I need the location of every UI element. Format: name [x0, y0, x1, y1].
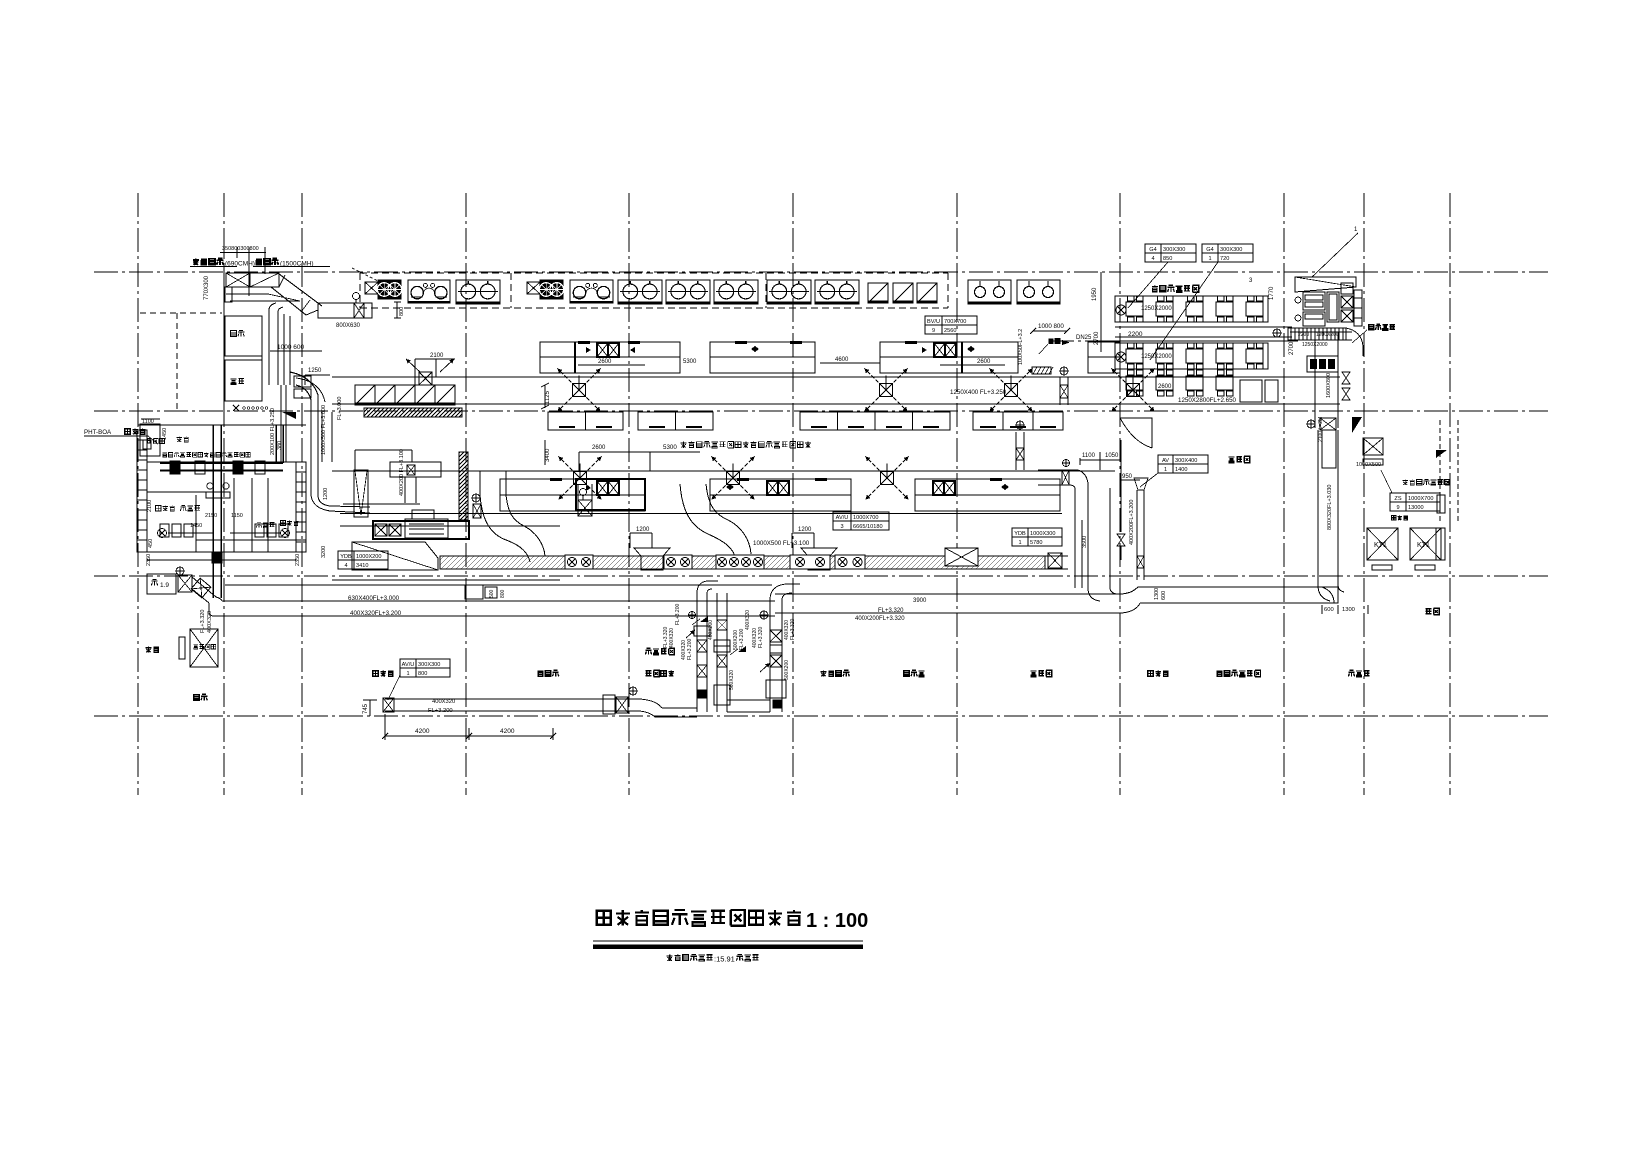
- svg-text:FL+3.320: FL+3.320: [790, 619, 796, 640]
- svg-text:1000X500 FL+3.100: 1000X500 FL+3.100: [753, 540, 810, 547]
- svg-text:1200: 1200: [636, 527, 650, 533]
- svg-text:400X320: 400X320: [432, 699, 455, 705]
- svg-text:1150: 1150: [231, 513, 243, 519]
- svg-text:2200: 2200: [1128, 331, 1143, 338]
- svg-text:450: 450: [148, 539, 154, 548]
- svg-text:700X700: 700X700: [944, 319, 966, 325]
- svg-text:1250: 1250: [308, 368, 322, 374]
- svg-text:1100: 1100: [142, 419, 154, 425]
- svg-text:4200: 4200: [415, 728, 430, 735]
- svg-text:4: 4: [1151, 256, 1154, 262]
- svg-text:400X320: 400X320: [207, 611, 213, 633]
- svg-text:800: 800: [418, 671, 427, 677]
- svg-text:DN25: DN25: [1076, 335, 1092, 341]
- svg-text:1000X200: 1000X200: [356, 554, 382, 560]
- svg-text:1250X2800FL+2.650: 1250X2800FL+2.650: [1178, 397, 1237, 404]
- svg-text:745: 745: [363, 703, 369, 714]
- svg-text:560X320: 560X320: [729, 670, 735, 690]
- svg-text:FL+3.320: FL+3.320: [663, 627, 669, 648]
- svg-text:KT1: KT1: [1374, 542, 1387, 549]
- svg-text:1770: 1770: [1269, 286, 1275, 300]
- svg-text:YDB: YDB: [340, 554, 352, 560]
- svg-text:500: 500: [489, 589, 495, 598]
- svg-text:2600: 2600: [598, 359, 612, 365]
- svg-text:ZS: ZS: [1394, 496, 1401, 502]
- svg-text:4200: 4200: [500, 728, 515, 735]
- svg-text:1: 1: [406, 671, 409, 677]
- svg-text:950: 950: [1122, 474, 1133, 480]
- svg-text:KT1: KT1: [1417, 542, 1430, 549]
- svg-text:400X320: 400X320: [745, 610, 751, 630]
- svg-text:1200: 1200: [323, 488, 329, 500]
- svg-text:1200: 1200: [798, 527, 812, 533]
- svg-text:1100: 1100: [1082, 453, 1096, 459]
- svg-text::15.91: :15.91: [714, 955, 735, 964]
- svg-text:500X200: 500X200: [784, 660, 790, 680]
- svg-text:AV/U: AV/U: [836, 515, 849, 521]
- svg-text:9: 9: [1396, 505, 1399, 511]
- svg-text:300X300: 300X300: [1163, 247, 1185, 253]
- svg-text:3500: 3500: [1082, 536, 1088, 548]
- svg-text:1000 800: 1000 800: [1038, 323, 1064, 330]
- svg-text:1000X300: 1000X300: [1030, 531, 1056, 537]
- svg-text:FL+3.200: FL+3.200: [687, 639, 693, 660]
- svg-text:2600: 2600: [592, 445, 606, 451]
- svg-text:380: 380: [277, 441, 283, 450]
- svg-text:AV/U: AV/U: [402, 662, 415, 668]
- svg-text:800: 800: [500, 589, 506, 598]
- svg-text:2100: 2100: [430, 353, 444, 359]
- svg-text:FL+3.200: FL+3.200: [428, 708, 453, 714]
- svg-text:1000 600: 1000 600: [277, 344, 304, 351]
- svg-text:YDB: YDB: [1014, 531, 1026, 537]
- svg-text:350800300800: 350800300800: [222, 246, 259, 252]
- svg-text:AV: AV: [1162, 458, 1169, 464]
- svg-text:1250X400 FL+3.250: 1250X400 FL+3.250: [950, 389, 1007, 396]
- svg-text:100X50FL+3.2: 100X50FL+3.2: [1018, 329, 1024, 365]
- svg-text:PHT-BOA: PHT-BOA: [84, 429, 112, 436]
- svg-text:800X320FL+3.030: 800X320FL+3.030: [1327, 485, 1333, 530]
- svg-text:1950: 1950: [1092, 287, 1098, 301]
- svg-text:3900: 3900: [913, 598, 927, 604]
- svg-text:1050: 1050: [1105, 453, 1119, 459]
- svg-text:FL+3.320: FL+3.320: [878, 608, 904, 614]
- svg-text:3410: 3410: [356, 563, 368, 569]
- svg-text:1: 1: [1164, 467, 1167, 473]
- svg-text:1.9: 1.9: [160, 582, 169, 589]
- svg-text:1000X700: 1000X700: [1408, 496, 1434, 502]
- svg-text:400X200FL+3.200: 400X200FL+3.200: [1129, 500, 1135, 545]
- svg-text:400X200 FL+3.100: 400X200 FL+3.100: [399, 449, 405, 496]
- svg-text:1: 1: [1018, 540, 1021, 546]
- svg-text:FL+3.200: FL+3.200: [739, 629, 745, 650]
- svg-text:770X300: 770X300: [204, 275, 210, 300]
- svg-text:1250X2000: 1250X2000: [1141, 354, 1172, 360]
- svg-text:9: 9: [932, 328, 935, 334]
- svg-text:2350: 2350: [295, 554, 301, 566]
- svg-text:4: 4: [344, 563, 347, 569]
- svg-text:2600: 2600: [1158, 384, 1172, 390]
- svg-text:4600: 4600: [835, 357, 849, 363]
- svg-text:G4: G4: [1149, 247, 1156, 253]
- svg-text:5300: 5300: [683, 359, 697, 365]
- svg-text:1400: 1400: [1175, 467, 1187, 473]
- svg-text:400X320: 400X320: [681, 640, 687, 660]
- svg-text:2600: 2600: [977, 359, 991, 365]
- svg-text:6665/10180: 6665/10180: [853, 524, 883, 530]
- svg-text:400X320: 400X320: [669, 628, 675, 648]
- svg-text:2100: 2100: [147, 500, 153, 512]
- svg-text:BV/U: BV/U: [927, 319, 940, 325]
- svg-text:1000X700: 1000X700: [853, 515, 879, 521]
- svg-text:850: 850: [1163, 256, 1172, 262]
- svg-text:13000: 13000: [1408, 505, 1424, 511]
- svg-text:400X200FL+3.320: 400X200FL+3.320: [855, 616, 905, 622]
- svg-text:400X320: 400X320: [752, 628, 758, 648]
- svg-text:1250X2000: 1250X2000: [1141, 306, 1172, 312]
- svg-text:FL+3.320: FL+3.320: [758, 627, 764, 648]
- svg-text:FL+3.200: FL+3.200: [675, 604, 681, 625]
- svg-text:2200: 2200: [1298, 332, 1309, 338]
- svg-text:600: 600: [1324, 607, 1334, 613]
- svg-text:720: 720: [1220, 256, 1229, 262]
- svg-text:1600X800: 1600X800: [1326, 373, 1332, 398]
- svg-text:2700: 2700: [1094, 331, 1100, 345]
- svg-text:5300: 5300: [663, 444, 677, 451]
- svg-text:2150: 2150: [205, 513, 217, 519]
- svg-text:300X300: 300X300: [1220, 247, 1242, 253]
- svg-text:1: 1: [1208, 256, 1211, 262]
- svg-text:400X320: 400X320: [784, 620, 790, 640]
- svg-text:1000X500: 1000X500: [1356, 462, 1381, 468]
- svg-text:5780: 5780: [1030, 540, 1042, 546]
- svg-text:2560: 2560: [944, 328, 956, 334]
- svg-text:G4: G4: [1206, 247, 1213, 253]
- svg-text:400X200: 400X200: [708, 620, 714, 640]
- svg-text:3400: 3400: [545, 448, 551, 462]
- svg-text:300X400: 300X400: [1175, 458, 1197, 464]
- svg-text:200X100 FL+3.250: 200X100 FL+3.250: [270, 408, 276, 455]
- svg-text:1200X200: 1200X200: [1316, 332, 1339, 338]
- svg-text:3: 3: [840, 524, 843, 530]
- svg-text:300X300: 300X300: [418, 662, 440, 668]
- svg-text:1 : 100: 1 : 100: [806, 910, 868, 932]
- svg-text:600: 600: [1161, 591, 1167, 600]
- svg-text:FL+3.000: FL+3.000: [337, 397, 343, 420]
- svg-text:1300: 1300: [1342, 607, 1355, 613]
- svg-text:3200: 3200: [321, 546, 327, 558]
- svg-text:800X630: 800X630: [336, 323, 361, 329]
- svg-text:1125: 1125: [545, 390, 551, 404]
- svg-text:1300: 1300: [1154, 588, 1160, 600]
- svg-text:2350: 2350: [146, 554, 152, 566]
- svg-text:800: 800: [399, 307, 405, 316]
- svg-text:2700: 2700: [1289, 341, 1295, 355]
